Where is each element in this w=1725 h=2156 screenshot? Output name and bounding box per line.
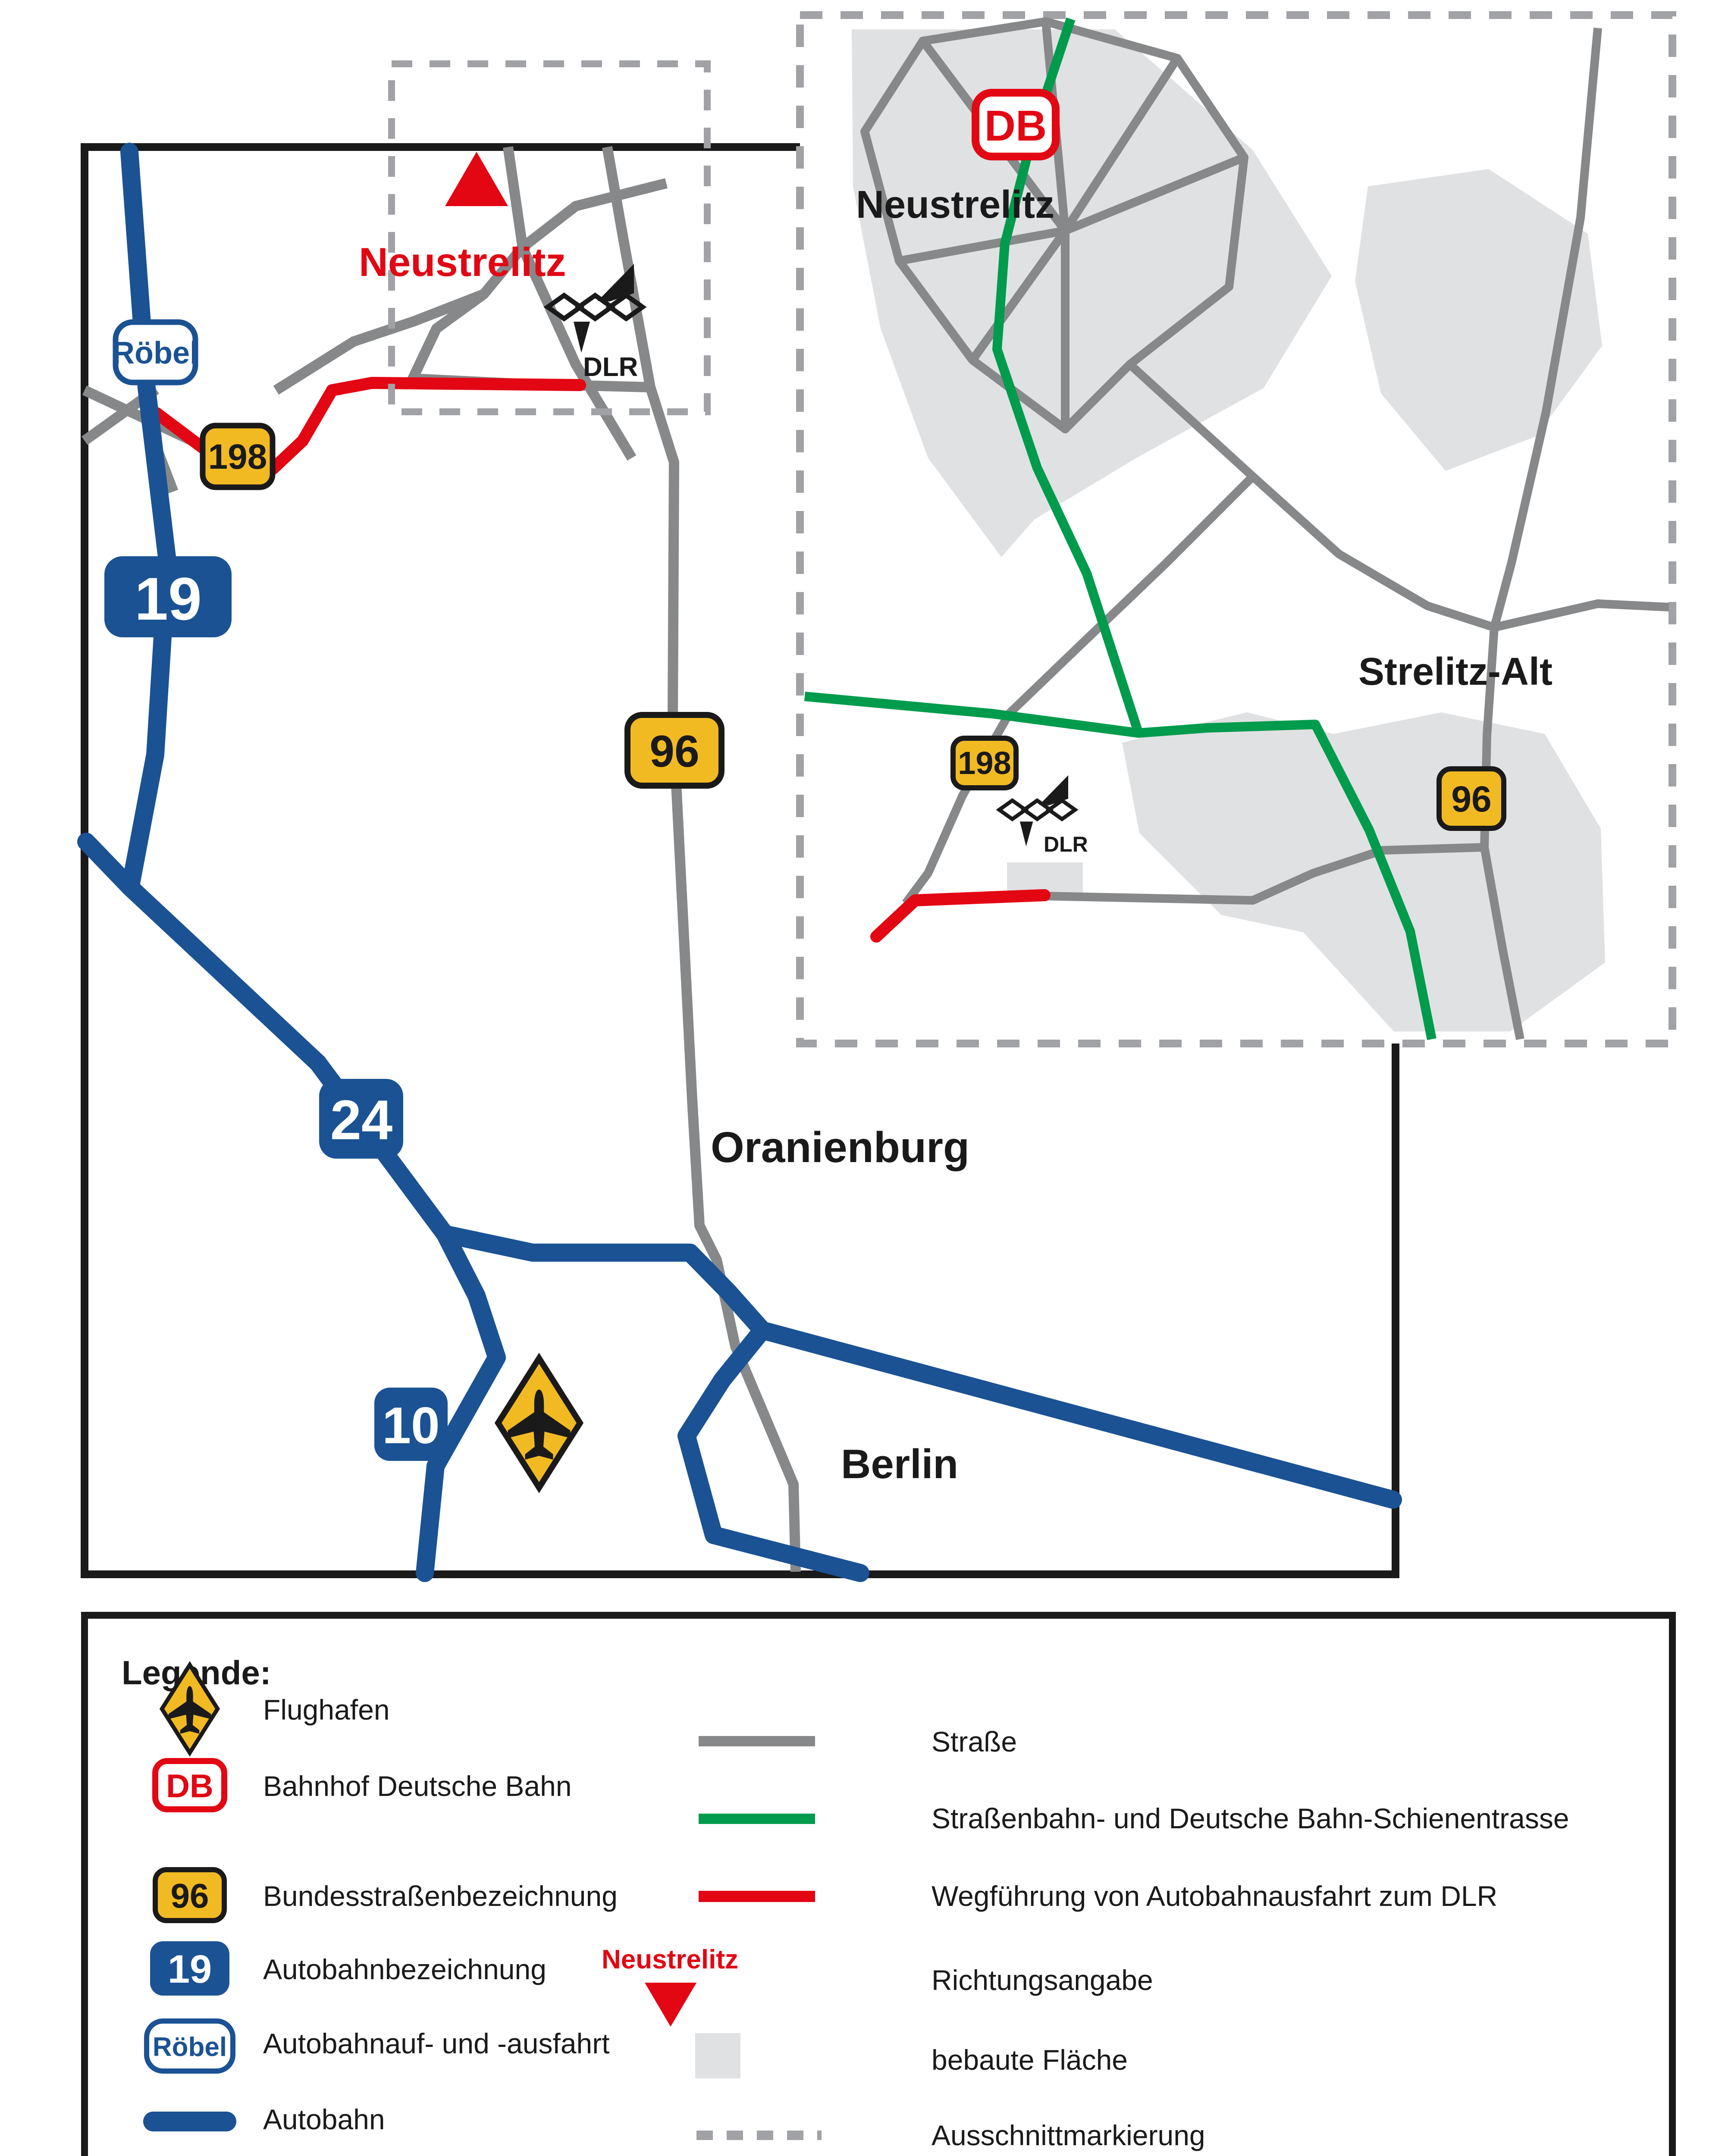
legend-label: Ausschnittmarkierung [931, 2119, 1205, 2151]
svg-text:Röbel: Röbel [112, 336, 198, 370]
svg-text:10: 10 [382, 1397, 439, 1454]
badge-b198-inset: 198 [953, 738, 1016, 788]
legend-label: Richtungsangabe [931, 1964, 1153, 1996]
legend-label: Autobahnauf- und -ausfahrt [263, 2028, 610, 2059]
anfahrt-map-canvas: Neustrelitz DLR Oranienburg Berlin Röbel… [0, 0, 1725, 2156]
legend-label: Autobahnbezeichnung [263, 1953, 546, 1985]
badge-b96-inset: 96 [1439, 769, 1504, 828]
badge-b198-main: 198 [203, 426, 273, 487]
svg-text:96: 96 [171, 1877, 209, 1915]
svg-text:Röbel: Röbel [153, 2032, 227, 2062]
svg-text:198: 198 [958, 745, 1011, 781]
svg-text:24: 24 [330, 1088, 393, 1151]
legend-label: Straßenbahn- und Deutsche Bahn-Schienent… [931, 1802, 1569, 1834]
svg-text:19: 19 [168, 1947, 212, 1991]
built-area [695, 2033, 740, 2078]
exit-badge: Röbel [147, 2021, 233, 2071]
autobahn-badge: 19 [150, 1941, 229, 1996]
dlr-main-label: DLR [583, 352, 638, 382]
neustrelitz-inset-label: Neustrelitz [856, 183, 1054, 226]
strelitz-alt-label: Strelitz-Alt [1358, 650, 1552, 693]
legend-label: Bundesstraßenbezeichnung [263, 1880, 618, 1912]
legend-label: Straße [931, 1726, 1017, 1758]
oranienburg-label: Oranienburg [711, 1123, 969, 1172]
badge-roebel: Röbel [112, 322, 198, 382]
inset-map: DB Neustrelitz Strelitz-Alt 198 96 DLR [800, 15, 1672, 1044]
svg-text:DB: DB [166, 1768, 213, 1805]
db-station-icon: DB [155, 1761, 224, 1809]
legend-label: Wegführung von Autobahnausfahrt zum DLR [931, 1880, 1497, 1912]
legend-label: Bahnhof Deutsche Bahn [263, 1770, 572, 1802]
badge-a24: 24 [319, 1079, 403, 1159]
svg-text:Neustrelitz: Neustrelitz [602, 1945, 738, 1974]
berlin-label: Berlin [841, 1441, 958, 1487]
legend-label: bebaute Fläche [931, 2044, 1128, 2076]
svg-text:198: 198 [208, 437, 267, 476]
federal-road-badge: 96 [155, 1870, 224, 1921]
svg-text:96: 96 [1451, 779, 1491, 819]
badge-b96-main: 96 [627, 715, 721, 786]
badge-a19: 19 [104, 556, 232, 637]
legend: Legende: Flughafen DB Bahnhof Deutsche B… [85, 1615, 1672, 2156]
legend-label: Autobahn [263, 2103, 385, 2135]
svg-text:19: 19 [135, 565, 202, 633]
badge-a10: 10 [374, 1388, 448, 1461]
svg-text:96: 96 [649, 727, 699, 777]
legend-label: Flughafen [263, 1694, 390, 1726]
dlr-inset-label: DLR [1044, 832, 1088, 856]
db-logo-inset: DB [975, 93, 1056, 157]
neustrelitz-main-label: Neustrelitz [359, 239, 566, 285]
svg-text:DB: DB [985, 102, 1047, 150]
